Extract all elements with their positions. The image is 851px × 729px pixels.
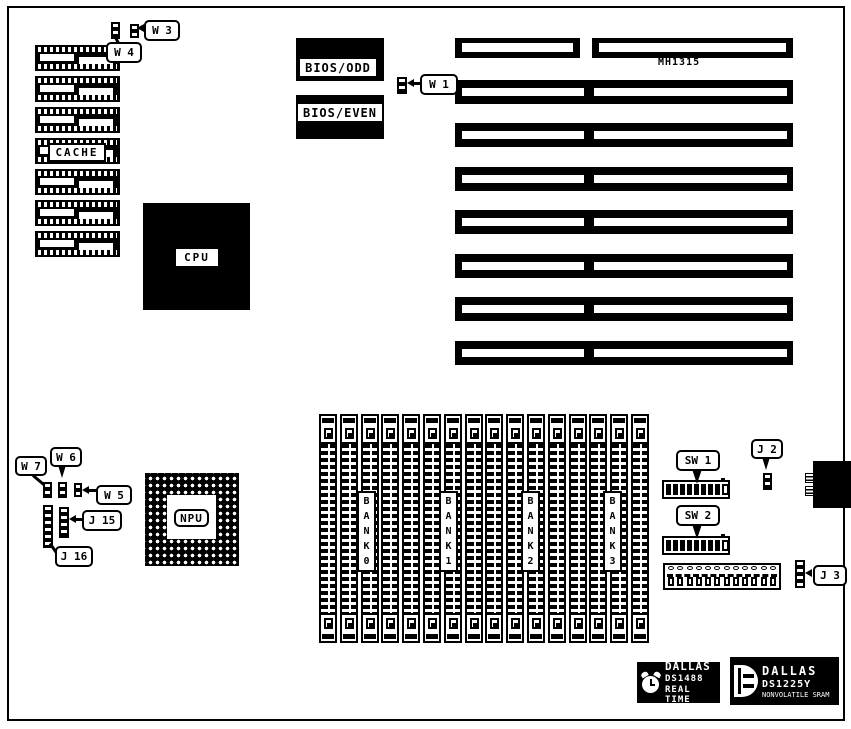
isa-slot-16bit <box>455 123 793 147</box>
power-connector <box>663 563 781 590</box>
simm-socket <box>340 414 358 643</box>
npu-label: NPU <box>174 509 209 527</box>
sram-logo-brand: DALLAS <box>762 664 829 678</box>
callout-w6: W 6 <box>50 447 82 467</box>
callout-j16: J 16 <box>55 546 93 567</box>
j3-leader-arrow <box>805 569 812 577</box>
cache-chip-row <box>35 200 120 226</box>
jumper-w6 <box>58 482 67 498</box>
jumper-w5 <box>74 483 82 497</box>
cpu-chip: CPU <box>143 203 250 310</box>
simm-socket <box>465 414 483 643</box>
bios-odd-chip: BIOS/ODD <box>296 38 384 81</box>
isa-slot-16bit <box>455 210 793 234</box>
callout-sw2: SW 2 <box>676 505 720 526</box>
cache-chip-row <box>35 169 120 195</box>
isa-slot-8bit <box>455 38 580 58</box>
keyboard-connector-pins <box>805 486 814 496</box>
jumper-w4 <box>111 22 120 39</box>
callout-j3: J 3 <box>813 565 847 586</box>
bios-even-chip: BIOS/EVEN <box>296 95 384 139</box>
isa-slot-16bit <box>455 254 793 278</box>
callout-sw1: SW 1 <box>676 450 720 471</box>
alarm-clock-icon <box>641 672 661 694</box>
w1-leader-line <box>413 82 420 85</box>
isa-slot-16bit <box>455 297 793 321</box>
callout-w5: W 5 <box>96 485 132 505</box>
npu-socket: NPU <box>145 473 239 566</box>
keyboard-connector <box>813 461 851 508</box>
power-connector-pins-top <box>668 566 776 570</box>
rtc-logo-brand: DALLAS <box>665 660 716 673</box>
slot-part-number: MH1315 <box>658 57 700 68</box>
cache-label: CACHE <box>48 143 106 162</box>
simm-socket <box>485 414 503 643</box>
isa-slot-16bit <box>455 80 793 104</box>
isa-slot-16bit <box>455 167 793 191</box>
dip-notch <box>721 534 725 538</box>
dallas-sram-chip: DALLAS DS1225Y NONVOLATILE SRAM <box>730 657 839 705</box>
isa-slot-8bit <box>592 38 793 58</box>
w3-leader-arrow <box>137 24 144 32</box>
cache-chip-row <box>35 76 120 102</box>
jumper-j2 <box>763 473 772 490</box>
bank2-label: B A N K 2 <box>521 491 540 572</box>
sram-logo-part: DS1225Y <box>762 679 829 690</box>
callout-w3: W 3 <box>144 20 180 41</box>
bank1-label: B A N K 1 <box>439 491 458 572</box>
simm-socket <box>381 414 399 643</box>
callout-j2: J 2 <box>751 439 783 459</box>
isa-slot-16bit <box>455 341 793 365</box>
simm-socket <box>631 414 649 643</box>
sw2-leader-arrow <box>692 524 702 539</box>
bios-odd-label: BIOS/ODD <box>300 59 376 76</box>
callout-w1: W 1 <box>420 74 458 95</box>
bios-even-label: BIOS/EVEN <box>298 104 382 121</box>
callout-w7: W 7 <box>15 456 47 476</box>
jumper-j3 <box>795 560 805 588</box>
power-connector-pins-bottom <box>668 577 776 586</box>
sram-logo-type: NONVOLATILE SRAM <box>762 691 829 699</box>
jumper-j15 <box>59 507 69 538</box>
simm-socket <box>319 414 337 643</box>
bank0-label: B A N K 0 <box>357 491 376 572</box>
callout-w4: W 4 <box>106 42 142 63</box>
simm-socket <box>569 414 587 643</box>
rtc-logo-type: REAL TIME <box>665 685 716 705</box>
rtc-logo-part: DS1488 <box>665 674 716 684</box>
callout-j15: J 15 <box>82 510 122 531</box>
simm-socket <box>402 414 420 643</box>
bank3-label: B A N K 3 <box>603 491 622 572</box>
simm-socket <box>548 414 566 643</box>
dip-notch <box>721 478 725 482</box>
dallas-rtc-chip: DALLAS DS1488 REAL TIME <box>637 662 720 703</box>
jumper-j16 <box>43 505 53 548</box>
jumper-w1 <box>397 77 407 94</box>
dallas-d-logo-icon <box>734 665 758 697</box>
sw1-leader-arrow <box>692 469 702 484</box>
keyboard-connector-pins <box>805 473 814 483</box>
motherboard-diagram: CACHE W 3 W 4 BIOS/ODD BIOS/EVEN W 1 MH1… <box>0 0 851 729</box>
cache-chip-row <box>35 107 120 133</box>
cpu-label: CPU <box>176 249 218 266</box>
cache-chip-row <box>35 231 120 257</box>
